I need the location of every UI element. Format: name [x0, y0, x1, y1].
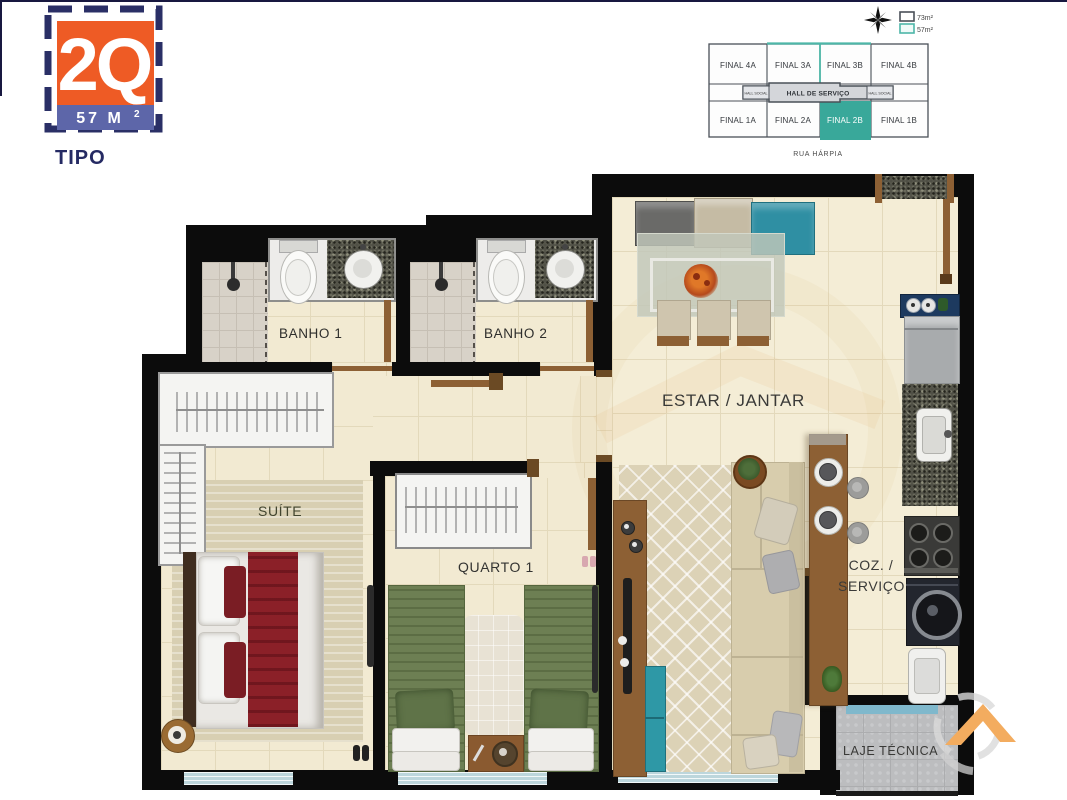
svg-text:FINAL 1B: FINAL 1B: [881, 116, 917, 125]
svg-text:FINAL 2B: FINAL 2B: [827, 116, 863, 125]
svg-text:HALL DE SERVIÇO: HALL DE SERVIÇO: [787, 91, 850, 98]
svg-text:73m²: 73m²: [917, 15, 934, 22]
svg-text:FINAL 2A: FINAL 2A: [775, 116, 811, 125]
svg-text:57m²: 57m²: [917, 27, 934, 34]
svg-text:57 M: 57 M: [76, 110, 124, 127]
svg-text:HALL SOCIAL: HALL SOCIAL: [868, 92, 891, 96]
svg-text:HALL SOCIAL: HALL SOCIAL: [744, 92, 767, 96]
svg-text:FINAL 1A: FINAL 1A: [720, 116, 756, 125]
svg-text:FINAL 4A: FINAL 4A: [720, 61, 756, 70]
svg-text:RUA HÁRPIA: RUA HÁRPIA: [793, 149, 842, 158]
svg-text:FINAL 3B: FINAL 3B: [827, 61, 863, 70]
svg-text:FINAL 3A: FINAL 3A: [775, 61, 811, 70]
svg-text:2: 2: [134, 109, 140, 120]
svg-text:FINAL 4B: FINAL 4B: [881, 61, 917, 70]
svg-text:2Q: 2Q: [58, 23, 151, 106]
